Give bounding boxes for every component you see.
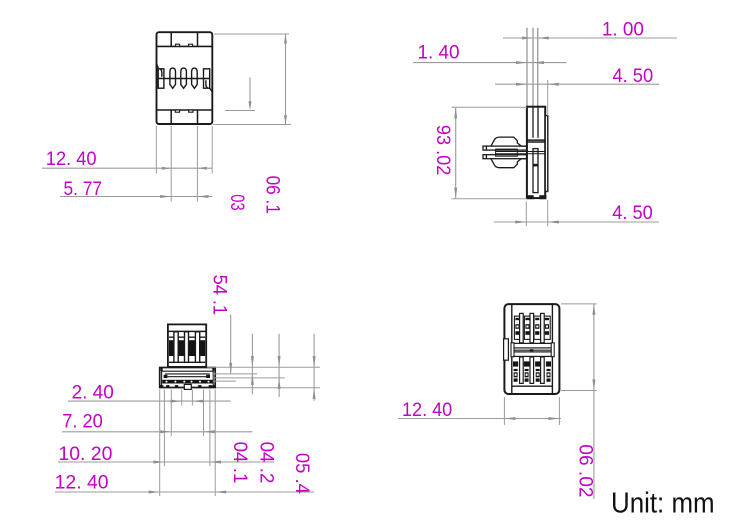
- svg-text:06 .02: 06 .02: [574, 444, 596, 497]
- svg-text:10. 20: 10. 20: [58, 443, 112, 465]
- svg-text:93 .02: 93 .02: [432, 125, 454, 175]
- svg-text:1. 00: 1. 00: [602, 18, 644, 40]
- svg-text:Unit: mm: Unit: mm: [611, 487, 715, 519]
- svg-text:54 .1: 54 .1: [209, 275, 231, 315]
- svg-text:4. 50: 4. 50: [613, 65, 654, 87]
- svg-text:12. 40: 12. 40: [46, 148, 97, 170]
- svg-text:03: 03: [226, 194, 248, 210]
- svg-text:12. 40: 12. 40: [402, 399, 452, 421]
- svg-text:5. 77: 5. 77: [64, 178, 103, 200]
- svg-text:2. 40: 2. 40: [72, 381, 114, 403]
- svg-text:04 .2: 04 .2: [255, 442, 277, 484]
- svg-text:1. 40: 1. 40: [418, 42, 460, 64]
- svg-text:05 .4: 05 .4: [291, 453, 313, 494]
- svg-text:12. 40: 12. 40: [55, 471, 109, 493]
- svg-text:4. 50: 4. 50: [612, 202, 653, 224]
- svg-text:06 .1: 06 .1: [262, 176, 284, 214]
- svg-text:7. 20: 7. 20: [62, 411, 103, 433]
- svg-text:04 .1: 04 .1: [229, 442, 251, 484]
